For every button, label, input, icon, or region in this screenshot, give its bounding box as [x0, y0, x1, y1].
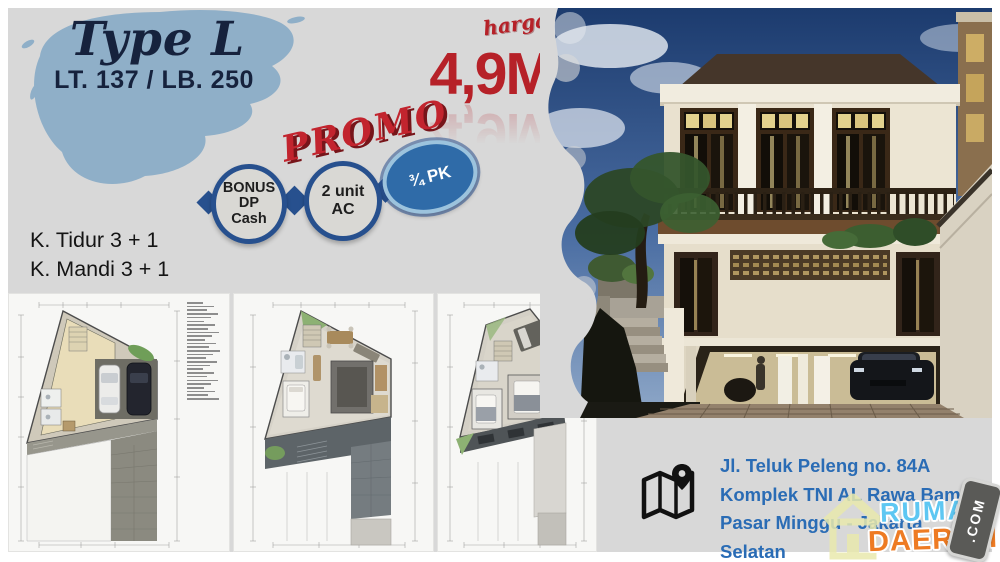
promo-bubble-bonus-dp: BONUS DP Cash — [211, 164, 287, 244]
house-type-title: Type L — [55, 12, 260, 67]
flyer-page: Type L LT. 137 / LB. 250 harga 4,9M 4,9M… — [0, 0, 1000, 562]
spec-bathrooms: K. Mandi 3 + 1 — [30, 255, 169, 284]
floorplan-panel-level2 — [233, 293, 434, 552]
rumahdaerah-watermark: RUMAH DAERAH .COM — [806, 476, 1000, 562]
land-building-size: LT. 137 / LB. 250 — [40, 66, 268, 95]
specs-block: K. Tidur 3 + 1 K. Mandi 3 + 1 — [30, 226, 169, 284]
floorplans-section — [8, 293, 597, 552]
floor-plan-ground-drawing — [11, 297, 187, 549]
map-location-icon — [636, 462, 700, 524]
spec-bedrooms: K. Tidur 3 + 1 — [30, 226, 169, 255]
house-render-photo — [540, 8, 992, 418]
floor-plan-level2-drawing — [239, 297, 429, 549]
floorplan-panel-ground — [8, 293, 230, 552]
floorplan-room-legend — [187, 300, 229, 402]
promo-bubble-ac: 2 unit AC — [304, 161, 382, 241]
